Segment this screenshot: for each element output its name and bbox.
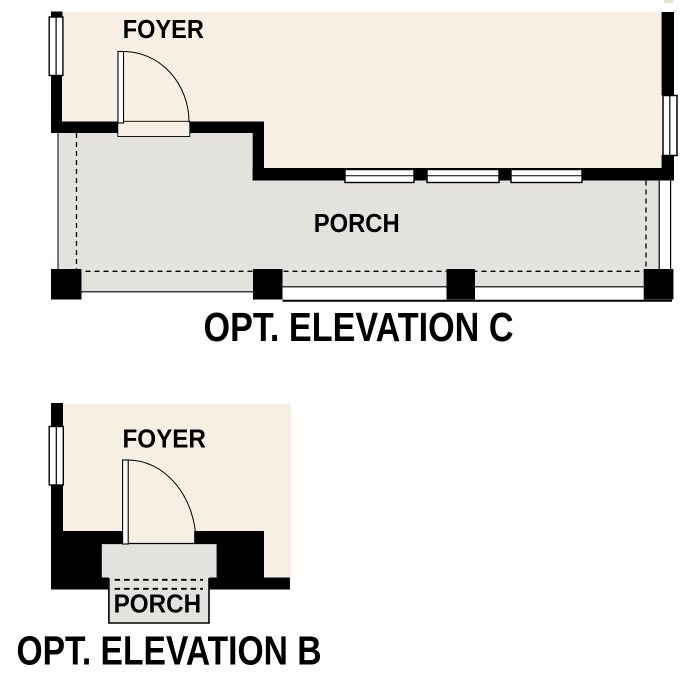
svg-text:OPT. ELEVATION B: OPT. ELEVATION B [17,628,322,674]
svg-text:FOYER: FOYER [123,16,204,44]
svg-text:FOYER: FOYER [122,425,206,453]
svg-text:PORCH: PORCH [314,210,400,238]
svg-text:PORCH: PORCH [114,591,202,619]
svg-text:OPT. ELEVATION C: OPT. ELEVATION C [204,304,514,350]
